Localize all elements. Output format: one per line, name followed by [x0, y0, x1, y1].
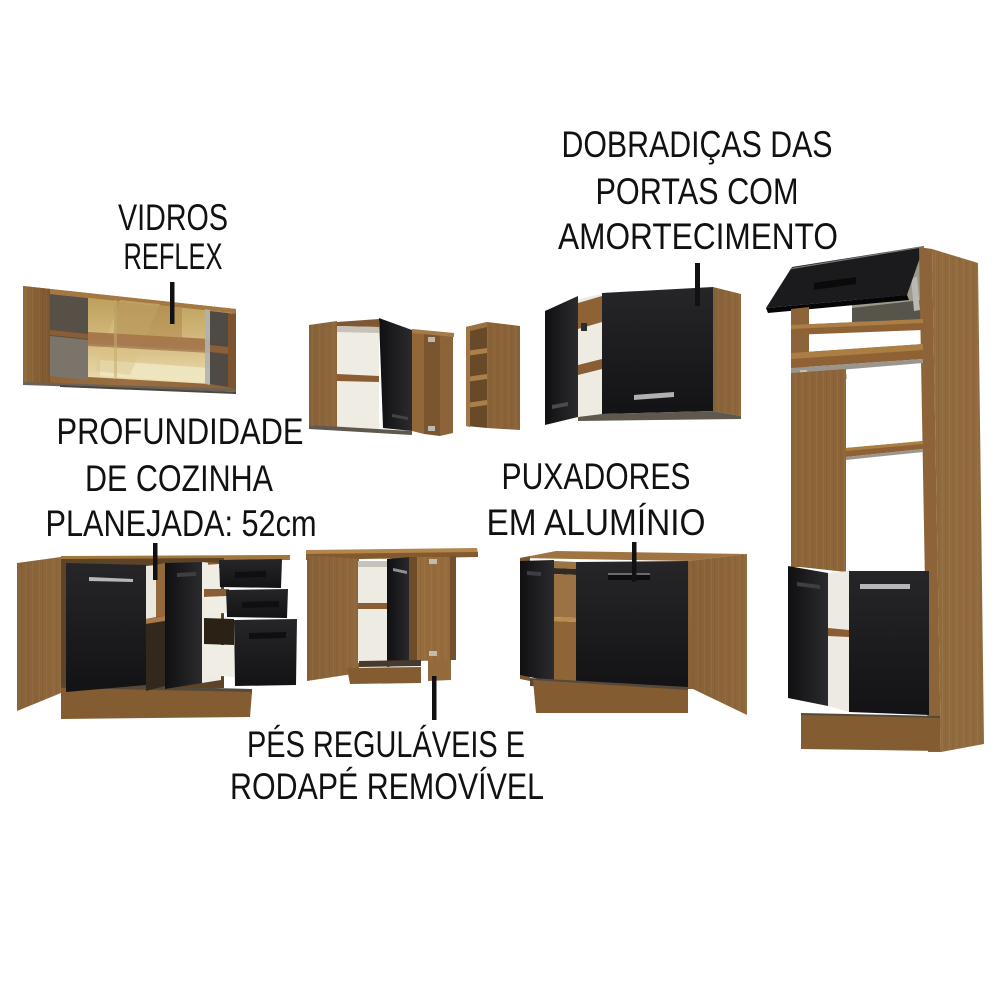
- svg-text:PUXADORES: PUXADORES: [502, 456, 691, 497]
- svg-text:EM ALUMÍNIO: EM ALUMÍNIO: [487, 502, 706, 543]
- svg-text:PORTAS COM: PORTAS COM: [596, 171, 799, 212]
- svg-text:PROFUNDIDADE: PROFUNDIDADE: [57, 411, 304, 452]
- svg-text:PÉS REGULÁVEIS E: PÉS REGULÁVEIS E: [247, 724, 525, 765]
- svg-text:REFLEX: REFLEX: [124, 236, 223, 277]
- svg-text:RODAPÉ REMOVÍVEL: RODAPÉ REMOVÍVEL: [230, 766, 544, 807]
- svg-text:DOBRADIÇAS DAS: DOBRADIÇAS DAS: [562, 124, 833, 165]
- svg-text:PLANEJADA: 52cm: PLANEJADA: 52cm: [46, 503, 317, 544]
- svg-text:VIDROS: VIDROS: [118, 197, 228, 238]
- svg-text:DE COZINHA: DE COZINHA: [85, 458, 273, 499]
- svg-text:AMORTECIMENTO: AMORTECIMENTO: [558, 216, 838, 257]
